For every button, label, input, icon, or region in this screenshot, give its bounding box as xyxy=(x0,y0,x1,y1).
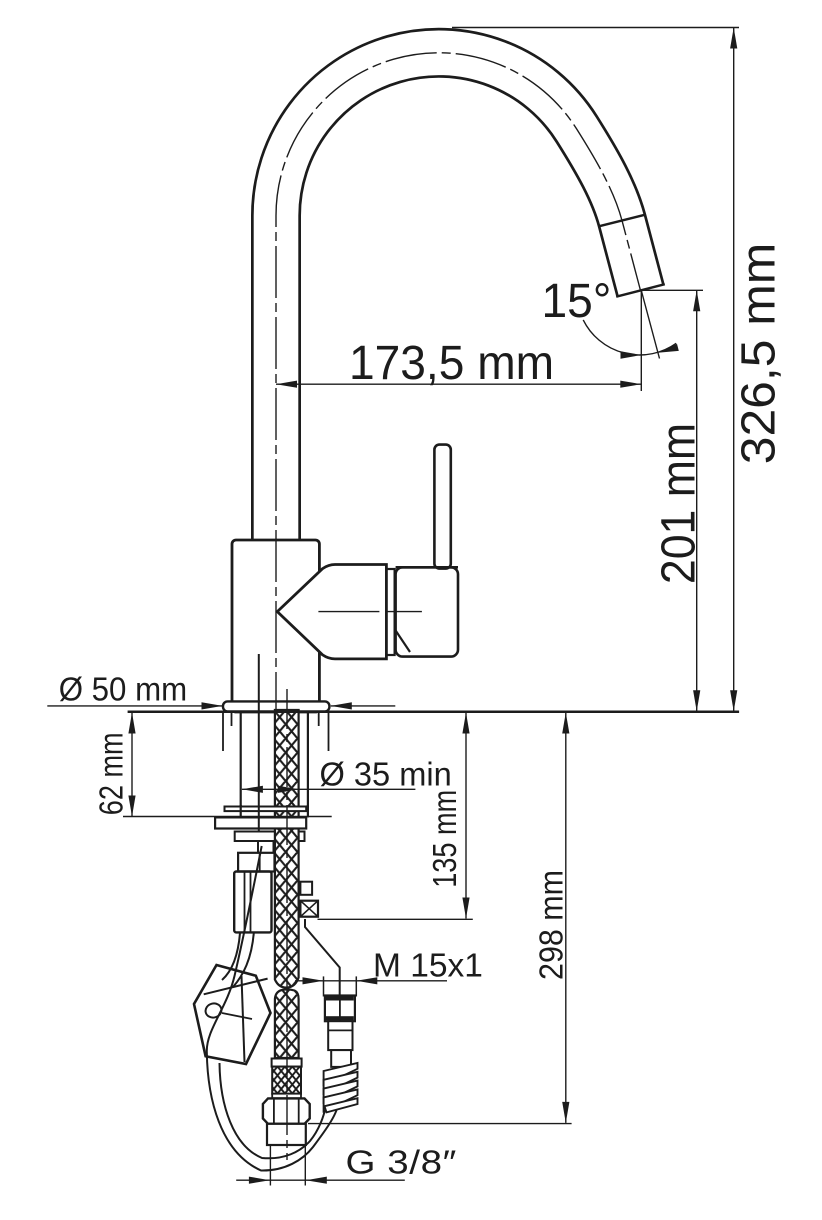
svg-text:M 15x1: M 15x1 xyxy=(373,948,483,985)
svg-text:G 3/8″: G 3/8″ xyxy=(346,1143,457,1181)
svg-text:135 mm: 135 mm xyxy=(426,790,463,888)
svg-text:173,5 mm: 173,5 mm xyxy=(349,335,554,389)
svg-text:201 mm: 201 mm xyxy=(651,423,705,584)
svg-text:62 mm: 62 mm xyxy=(93,732,130,815)
svg-text:Ø 35 min: Ø 35 min xyxy=(320,756,452,794)
svg-text:326,5 mm: 326,5 mm xyxy=(732,243,785,464)
svg-text:298 mm: 298 mm xyxy=(532,870,570,980)
svg-text:15°: 15° xyxy=(542,273,612,327)
svg-text:Ø 50 mm: Ø 50 mm xyxy=(59,671,187,708)
